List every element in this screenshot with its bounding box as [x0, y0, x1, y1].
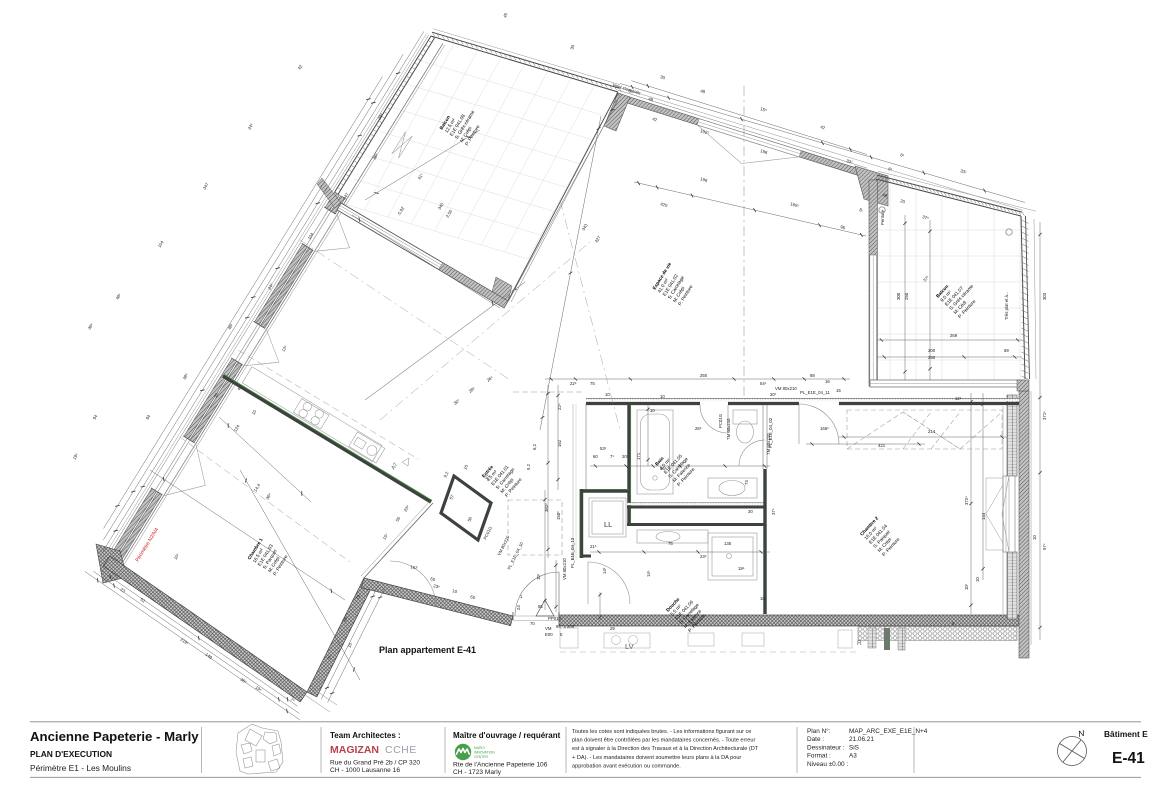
svg-text:MARLY: MARLY	[474, 746, 486, 750]
svg-text:16: 16	[825, 379, 830, 384]
svg-text:LL: LL	[604, 520, 612, 529]
svg-text:19⁵: 19⁵	[738, 566, 745, 571]
svg-text:88: 88	[810, 373, 815, 378]
svg-text:CENTER: CENTER	[474, 755, 488, 759]
svg-text:CCHE: CCHE	[385, 744, 417, 756]
svg-text:30: 30	[748, 509, 753, 514]
svg-text:57⁴: 57⁴	[1042, 543, 1047, 550]
svg-text:Niveau ±0.00 :: Niveau ±0.00 :	[807, 761, 848, 768]
svg-text:PL_E1E_04_13: PL_E1E_04_13	[570, 537, 575, 568]
svg-text:R: R	[857, 640, 862, 647]
svg-text:23⁶: 23⁶	[700, 554, 707, 559]
svg-text:MAGIZAN: MAGIZAN	[330, 744, 379, 756]
svg-text:26⁶: 26⁶	[695, 426, 702, 431]
svg-text:plan doivent être contrôlées p: plan doivent être contrôlées par les man…	[572, 738, 755, 744]
svg-text:Rue du Grand Pré 2b / CP 320: Rue du Grand Pré 2b / CP 320	[330, 760, 420, 767]
svg-text:214: 214	[928, 429, 936, 434]
svg-text:171: 171	[636, 452, 641, 460]
svg-text:MAP_ARC_EXE_E1E_N+4: MAP_ARC_EXE_E1E_N+4	[849, 728, 928, 735]
svg-text:Penture: Penture	[880, 209, 885, 225]
svg-text:14⁵: 14⁵	[646, 570, 651, 577]
svg-text:15: 15	[836, 388, 841, 393]
svg-text:Périmètre E1 - Les Moulins: Périmètre E1 - Les Moulins	[30, 763, 131, 773]
svg-text:10: 10	[760, 596, 765, 601]
svg-text:70: 70	[530, 621, 535, 626]
svg-text:Bâtiment E: Bâtiment E	[1104, 729, 1148, 739]
svg-text:approbation avant exécution ou: approbation avant exécution ou commande.	[572, 763, 681, 769]
svg-text:6,2: 6,2	[532, 443, 537, 450]
svg-text:10⁷: 10⁷	[964, 583, 969, 590]
svg-text:22⁴: 22⁴	[557, 403, 562, 410]
svg-text:250: 250	[928, 355, 936, 360]
svg-text:PL_E1E_04_11: PL_E1E_04_11	[800, 390, 830, 395]
svg-text:Format :: Format :	[807, 753, 831, 760]
svg-text:+ DA). - Les mandataires doive: + DA). - Les mandataires doivent soumett…	[572, 755, 741, 761]
svg-text:382²: 382²	[544, 503, 549, 512]
svg-text:PC01G: PC01G	[718, 413, 723, 428]
svg-text:A3: A3	[849, 753, 857, 760]
svg-text:10: 10	[650, 408, 655, 413]
svg-text:69: 69	[1004, 348, 1009, 353]
svg-text:55: 55	[538, 604, 543, 609]
svg-text:269: 269	[950, 333, 958, 338]
svg-text:Team Architectes :: Team Architectes :	[330, 731, 401, 740]
svg-text:VM: VM	[545, 626, 552, 631]
svg-text:150⁶: 150⁶	[556, 511, 561, 520]
svg-text:VM 80x210: VM 80x210	[562, 558, 567, 580]
svg-text:22⁵: 22⁵	[570, 381, 577, 386]
svg-text:94° x 208°: 94° x 208°	[556, 624, 576, 629]
svg-text:12⁵: 12⁵	[955, 396, 962, 401]
svg-text:Rte de l'Ancienne Papeterie 10: Rte de l'Ancienne Papeterie 106	[453, 762, 548, 769]
svg-text:Très plat et à...: Très plat et à...	[1004, 292, 1009, 321]
svg-text:INNOVATION: INNOVATION	[474, 751, 495, 755]
svg-text:Maître d'ouvrage / requérant: Maître d'ouvrage / requérant	[453, 731, 561, 740]
svg-text:300: 300	[896, 292, 901, 300]
svg-text:144: 144	[981, 512, 986, 520]
svg-text:54¹: 54¹	[760, 381, 767, 386]
svg-text:Toutes les cotes sont indiquée: Toutes les cotes sont indiquées brutes. …	[572, 729, 751, 735]
svg-text:E-41: E-41	[1112, 750, 1145, 767]
svg-text:10: 10	[975, 577, 980, 582]
svg-text:303: 303	[1042, 292, 1047, 300]
svg-text:10: 10	[605, 392, 610, 397]
svg-text:75: 75	[668, 541, 673, 546]
svg-text:Date :: Date :	[807, 736, 824, 743]
svg-text:10: 10	[660, 394, 665, 399]
svg-text:135: 135	[724, 541, 732, 546]
svg-text:SiS: SiS	[849, 744, 859, 751]
svg-text:6⁷: 6⁷	[238, 386, 242, 391]
svg-text:7¹: 7¹	[610, 454, 614, 459]
svg-text:CH - 1723 Marly: CH - 1723 Marly	[453, 769, 502, 776]
svg-text:75: 75	[590, 381, 595, 386]
svg-text:60: 60	[593, 454, 598, 459]
svg-text:TM 60x210: TM 60x210	[726, 418, 731, 440]
svg-text:372⁴: 372⁴	[964, 496, 969, 505]
svg-text:200: 200	[928, 348, 936, 353]
svg-text:53¹: 53¹	[600, 446, 607, 451]
svg-text:73: 73	[744, 480, 749, 485]
svg-text:20¹: 20¹	[622, 454, 629, 459]
svg-text:70: 70	[690, 621, 695, 626]
svg-text:16⁶: 16⁶	[660, 466, 667, 471]
svg-text:10⁷: 10⁷	[536, 573, 541, 580]
svg-text:371⁵: 371⁵	[1042, 411, 1047, 420]
svg-text:152: 152	[557, 439, 562, 447]
svg-text:Plan appartement E-41: Plan appartement E-41	[379, 645, 476, 655]
svg-text:14⁶: 14⁶	[602, 567, 607, 574]
svg-text:421: 421	[878, 443, 886, 448]
svg-text:20⁷: 20⁷	[770, 392, 777, 397]
svg-text:Plan N°:: Plan N°:	[807, 727, 831, 735]
svg-text:21.06.21: 21.06.21	[849, 736, 874, 743]
svg-text:LV: LV	[625, 642, 634, 651]
svg-text:250: 250	[904, 292, 909, 300]
svg-text:PL_E1E_04_02: PL_E1E_04_02	[768, 417, 773, 448]
svg-text:166⁵: 166⁵	[820, 426, 829, 431]
svg-text:E00: E00	[545, 632, 553, 637]
svg-text:CH - 1000 Lausanne 16: CH - 1000 Lausanne 16	[330, 767, 400, 774]
svg-text:29: 29	[610, 626, 615, 631]
svg-text:250: 250	[700, 373, 708, 378]
svg-text:est à signaler à la Direction: est à signaler à la Direction des Travau…	[572, 746, 759, 752]
svg-text:Ancienne Papeterie - Marly: Ancienne Papeterie - Marly	[30, 729, 199, 744]
svg-text:21⁶: 21⁶	[590, 544, 597, 549]
svg-text:10: 10	[1032, 535, 1037, 540]
svg-text:24: 24	[516, 605, 521, 610]
svg-text:PLAN D'EXECUTION: PLAN D'EXECUTION	[30, 749, 112, 759]
svg-text:PP01G: PP01G	[548, 616, 563, 621]
svg-text:9,2: 9,2	[526, 463, 531, 470]
svg-text:37⁵: 37⁵	[771, 508, 776, 515]
svg-text:VM 80x210: VM 80x210	[775, 386, 797, 391]
svg-text:Dessinateur :: Dessinateur :	[807, 744, 845, 751]
